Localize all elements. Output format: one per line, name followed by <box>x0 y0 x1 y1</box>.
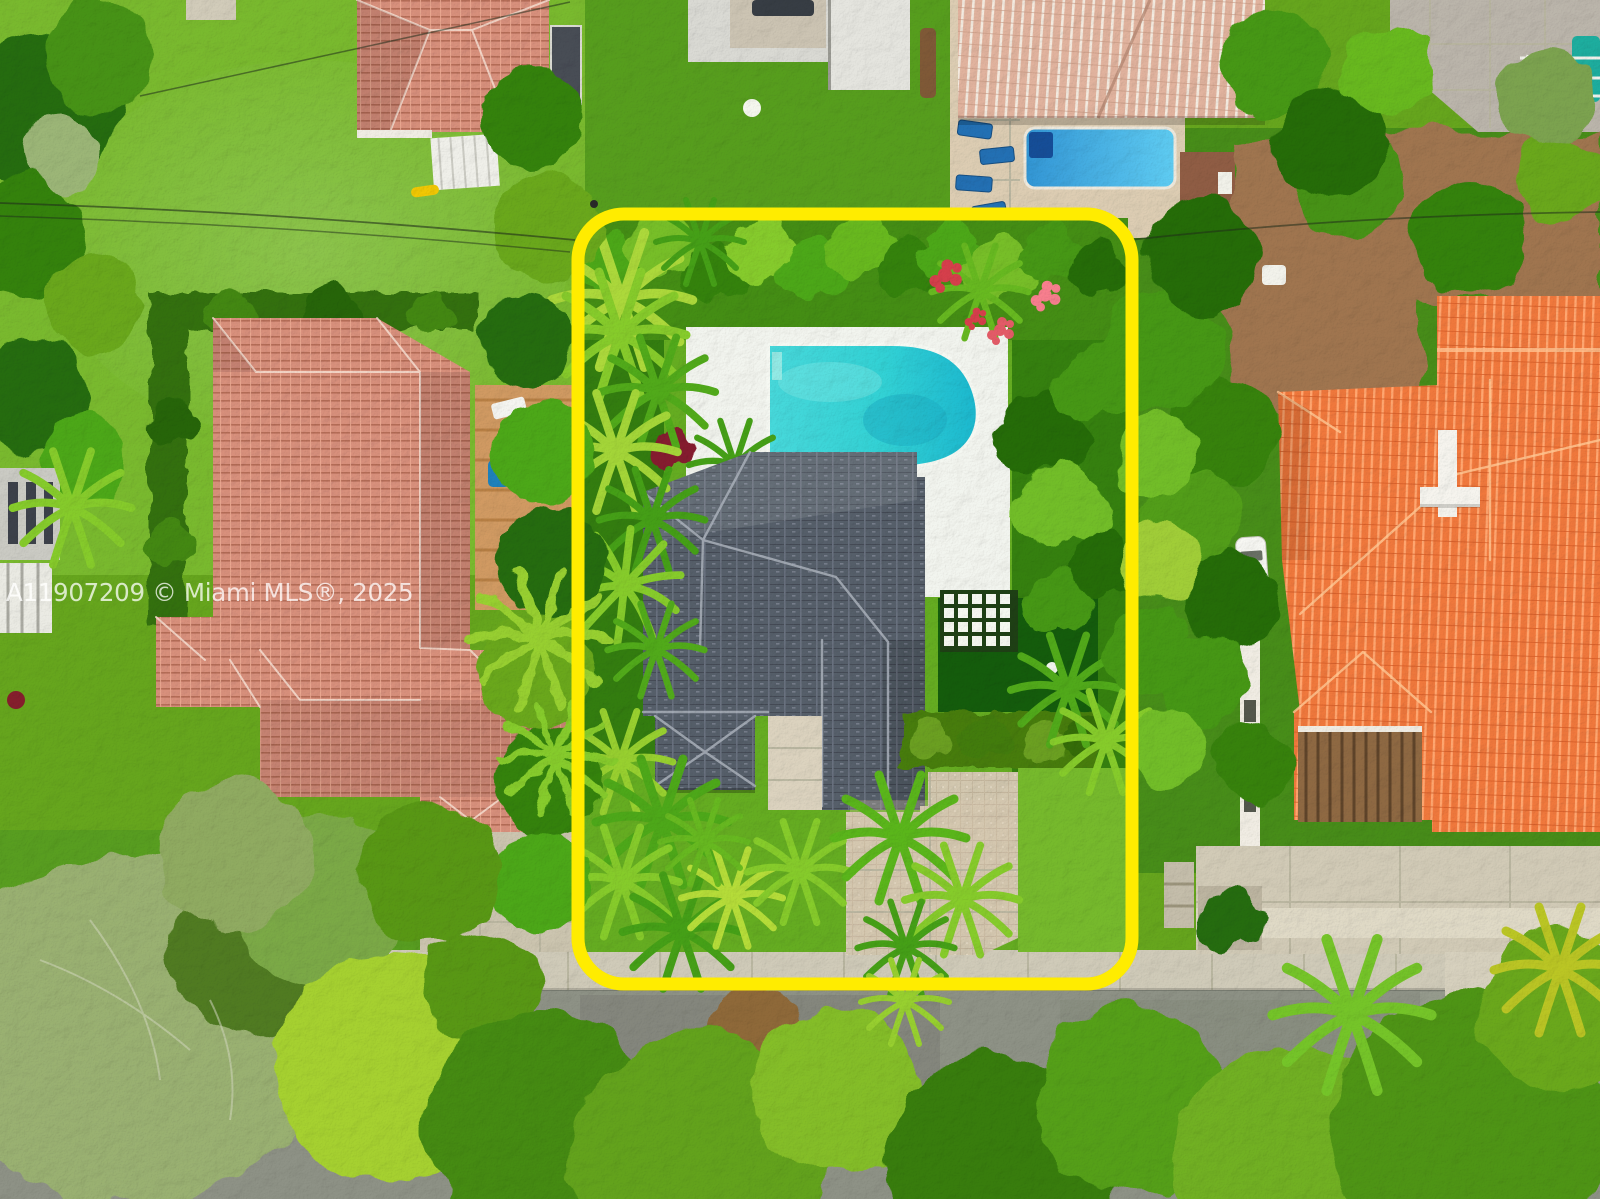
aerial-photo: A11907209 © Miami MLS®, 2025 <box>0 0 1600 1199</box>
watermark-text: A11907209 © Miami MLS®, 2025 <box>6 578 413 607</box>
aerial-photo-svg: A11907209 © Miami MLS®, 2025 <box>0 0 1600 1199</box>
